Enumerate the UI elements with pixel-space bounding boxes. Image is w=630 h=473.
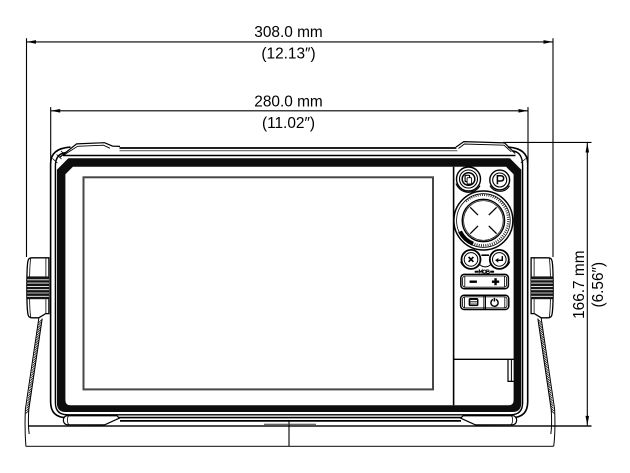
svg-text:280.0 mm: 280.0 mm xyxy=(254,93,322,110)
svg-text:(12.13″): (12.13″) xyxy=(261,46,315,63)
svg-text:(11.02″): (11.02″) xyxy=(262,115,315,132)
svg-text:166.7 mm: 166.7 mm xyxy=(571,250,588,318)
svg-text:(6.56″): (6.56″) xyxy=(590,262,607,308)
svg-text:308.0 mm: 308.0 mm xyxy=(254,24,322,41)
